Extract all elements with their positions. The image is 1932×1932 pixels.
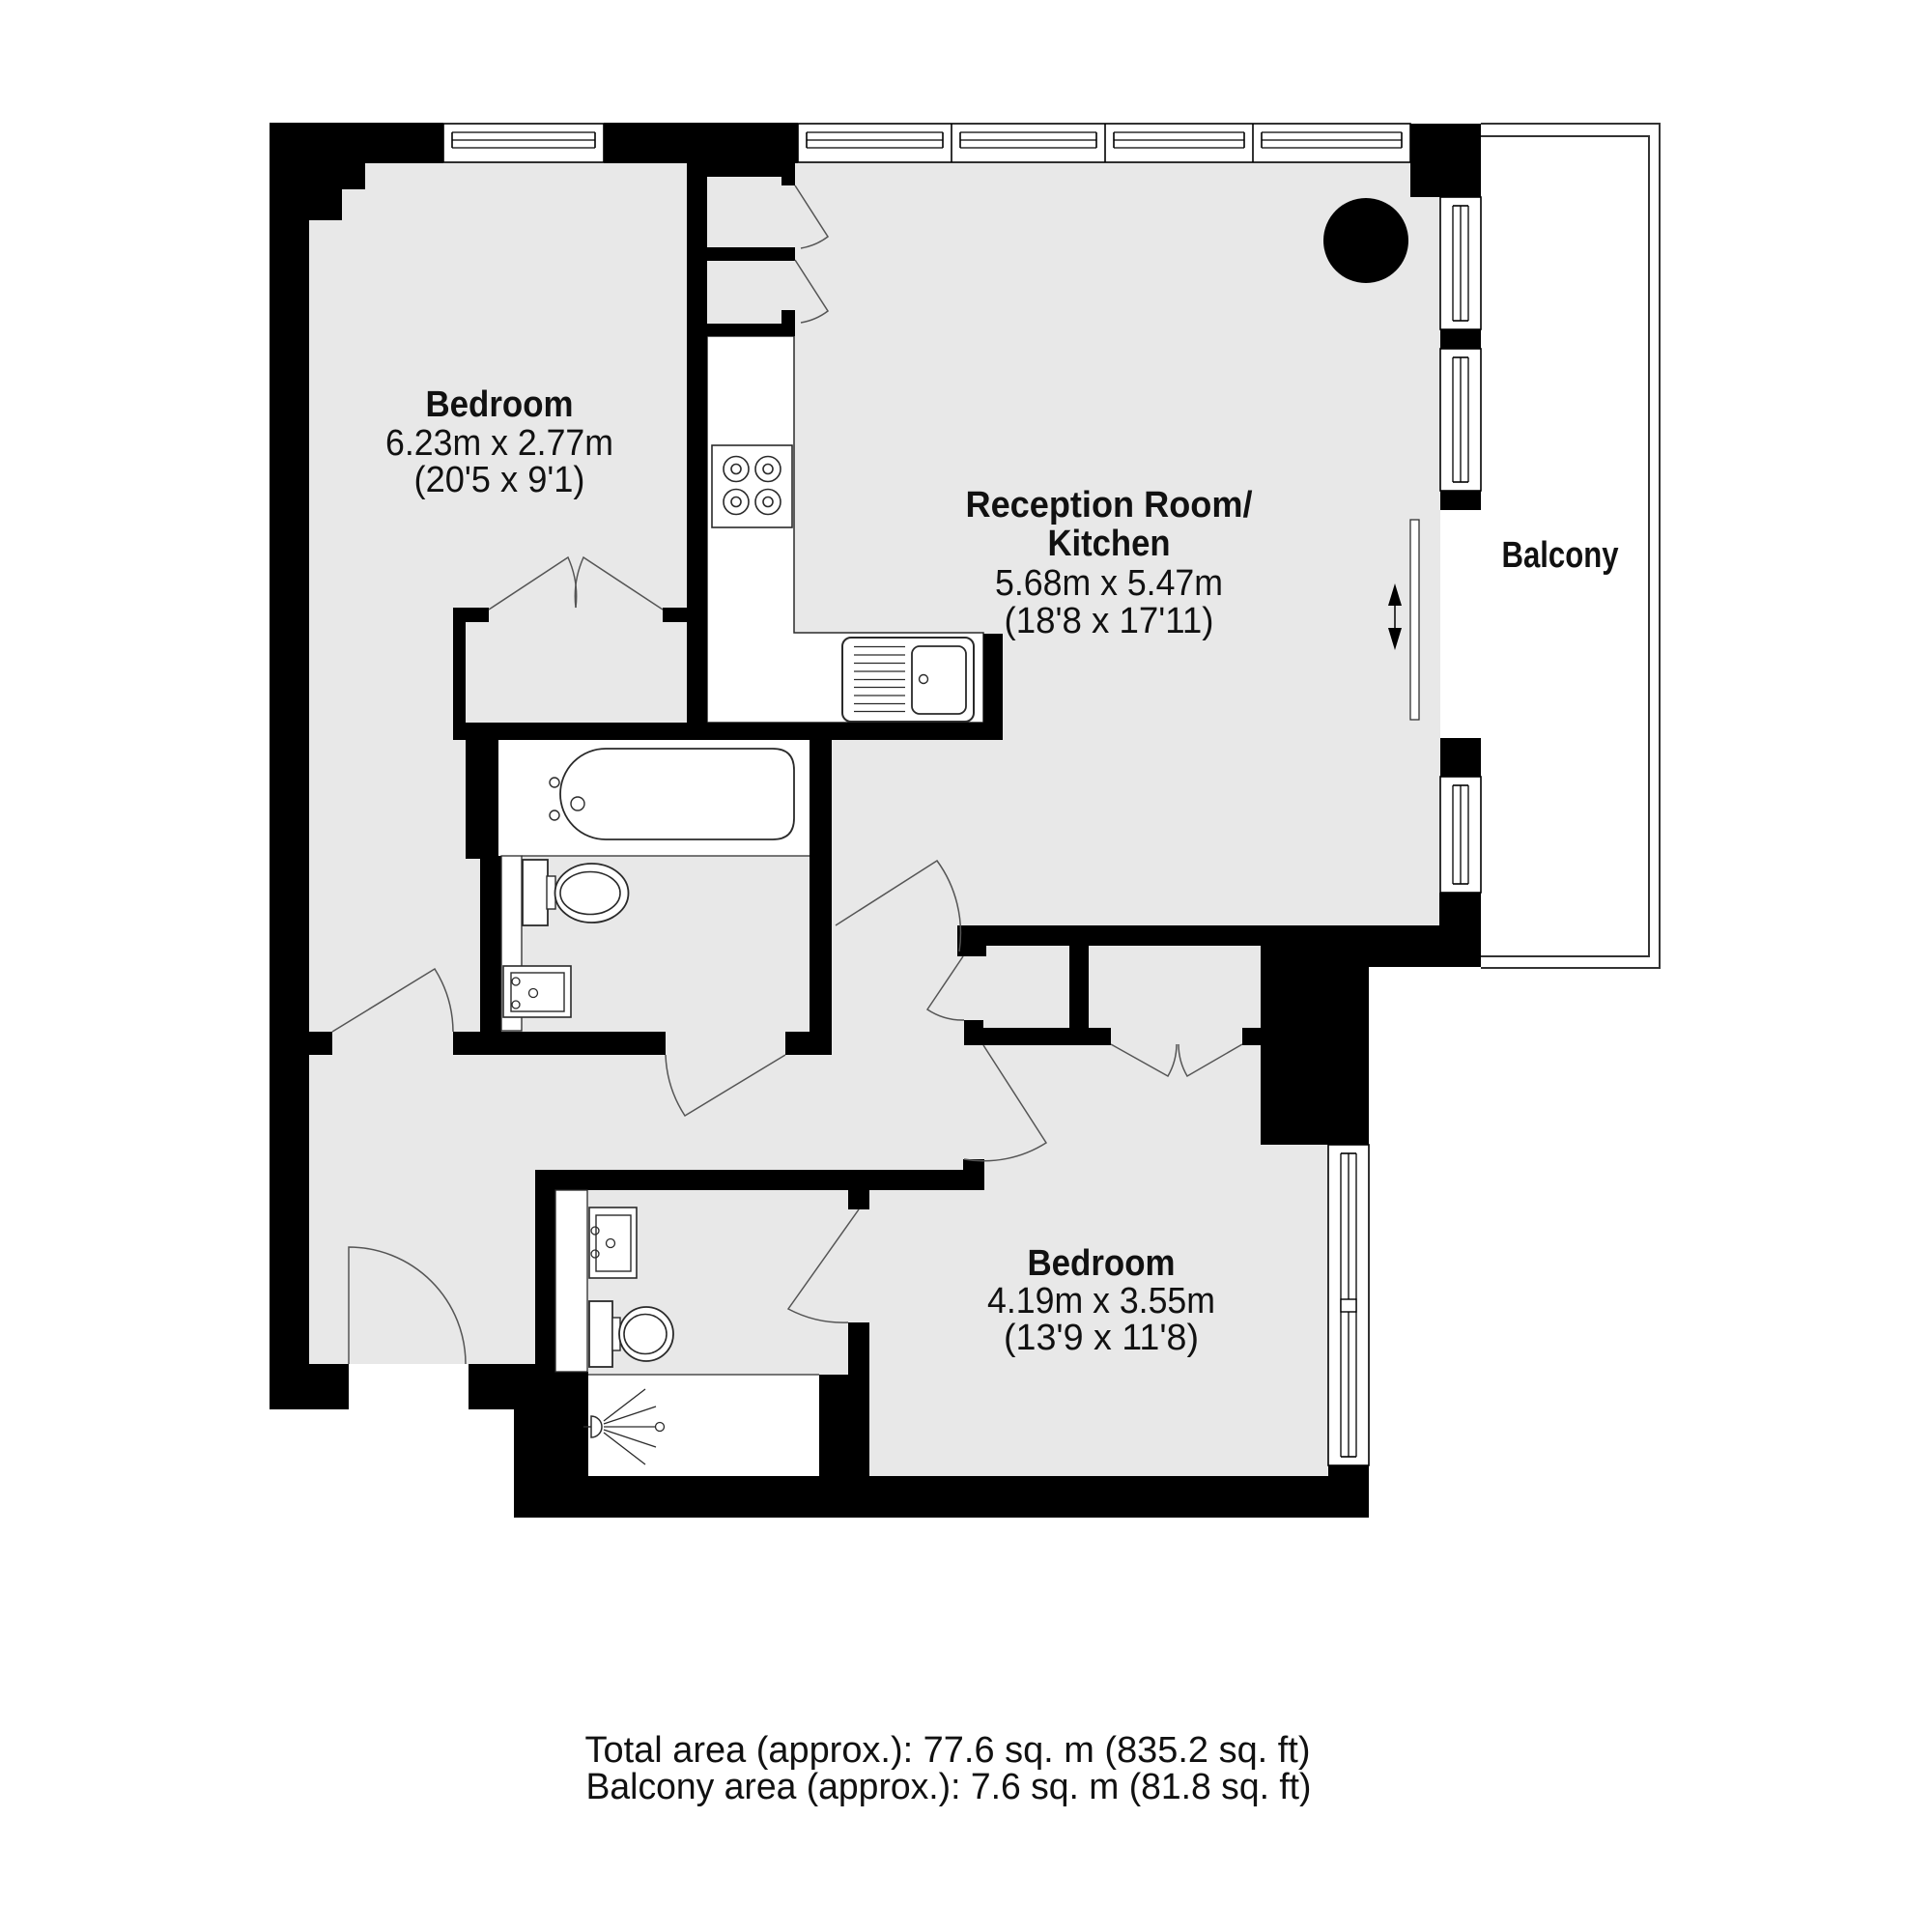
svg-text:Bedroom: Bedroom <box>426 384 574 425</box>
svg-text:Balcony area (approx.): 7.6 sq: Balcony area (approx.): 7.6 sq. m (81.8 … <box>586 1767 1312 1807</box>
svg-text:4.19m x 3.55m: 4.19m x 3.55m <box>987 1281 1215 1321</box>
svg-text:6.23m x 2.77m: 6.23m x 2.77m <box>385 423 613 464</box>
svg-text:5.68m x 5.47m: 5.68m x 5.47m <box>995 563 1223 604</box>
svg-text:Reception Room/: Reception Room/ <box>966 485 1253 526</box>
svg-text:(20'5 x 9'1): (20'5 x 9'1) <box>414 460 585 500</box>
svg-text:Balcony: Balcony <box>1502 535 1619 576</box>
svg-text:(13'9 x 11'8): (13'9 x 11'8) <box>1004 1318 1199 1358</box>
svg-text:Total area (approx.): 77.6 sq.: Total area (approx.): 77.6 sq. m (835.2 … <box>585 1730 1311 1771</box>
svg-text:Bedroom: Bedroom <box>1028 1243 1176 1284</box>
svg-text:Kitchen: Kitchen <box>1048 524 1171 564</box>
svg-text:(18'8 x 17'11): (18'8 x 17'11) <box>1005 601 1214 641</box>
